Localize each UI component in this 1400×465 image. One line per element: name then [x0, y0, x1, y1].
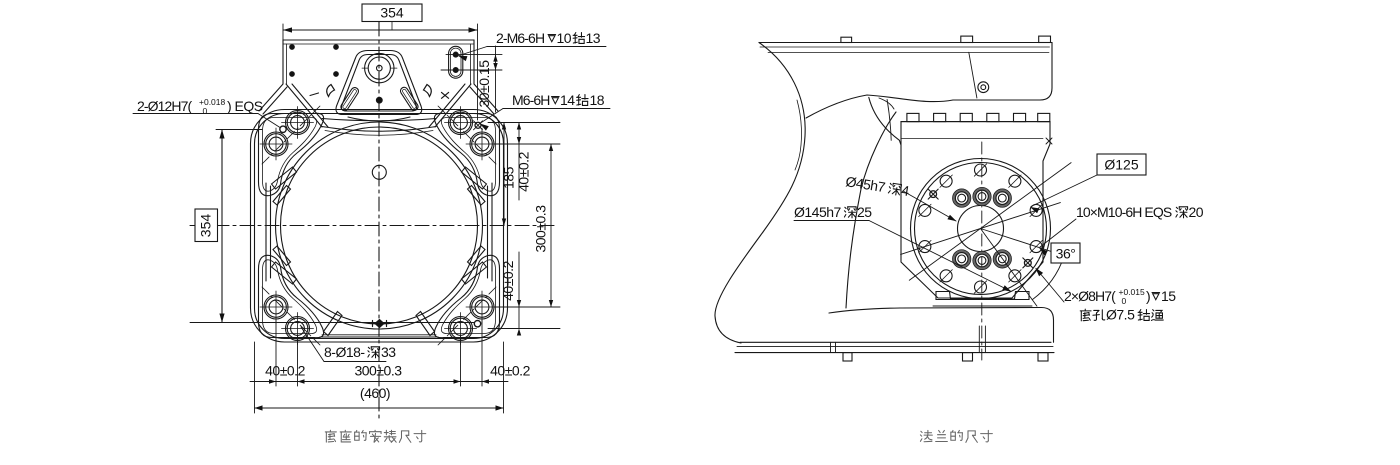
- svg-text:40±0.2: 40±0.2: [516, 151, 532, 191]
- svg-text:10×M10-6H EQS: 10×M10-6H EQS: [1076, 204, 1172, 220]
- svg-text:Ø145h7: Ø145h7: [794, 204, 842, 220]
- svg-text:40±0.2: 40±0.2: [490, 363, 530, 379]
- svg-text:13: 13: [586, 30, 601, 46]
- svg-text:300±0.3: 300±0.3: [354, 363, 402, 379]
- svg-text:33: 33: [381, 344, 396, 360]
- svg-text:0: 0: [1122, 296, 1127, 306]
- svg-text:18: 18: [590, 92, 605, 108]
- svg-text:0: 0: [203, 106, 208, 116]
- svg-text:354: 354: [198, 214, 214, 238]
- svg-text:2-Ø12H7(: 2-Ø12H7(: [137, 98, 193, 114]
- svg-text:40±0.2: 40±0.2: [500, 260, 516, 300]
- svg-text:): ): [1146, 288, 1150, 304]
- svg-text:15: 15: [1161, 288, 1176, 304]
- svg-text:300±0.3: 300±0.3: [533, 205, 549, 253]
- svg-text:(460): (460): [360, 385, 390, 401]
- svg-text:10: 10: [557, 30, 572, 46]
- svg-text:36°: 36°: [1056, 246, 1076, 262]
- svg-text:Ø7.5: Ø7.5: [1106, 307, 1135, 323]
- svg-text:40±0.2: 40±0.2: [265, 363, 305, 379]
- svg-text:354: 354: [380, 5, 404, 21]
- svg-text:20: 20: [1189, 204, 1204, 220]
- svg-text:) EQS: ) EQS: [227, 98, 263, 114]
- svg-text:25: 25: [857, 204, 872, 220]
- svg-text:2×Ø8H7(: 2×Ø8H7(: [1064, 288, 1116, 304]
- svg-text:14: 14: [560, 92, 575, 108]
- svg-text:2-M6-6H: 2-M6-6H: [496, 30, 544, 46]
- svg-text:Ø125: Ø125: [1104, 157, 1138, 173]
- svg-text:M6-6H: M6-6H: [512, 92, 550, 108]
- svg-text:8-Ø18-: 8-Ø18-: [324, 344, 365, 360]
- svg-text:185: 185: [501, 166, 517, 189]
- svg-text:30±0.15: 30±0.15: [476, 60, 492, 108]
